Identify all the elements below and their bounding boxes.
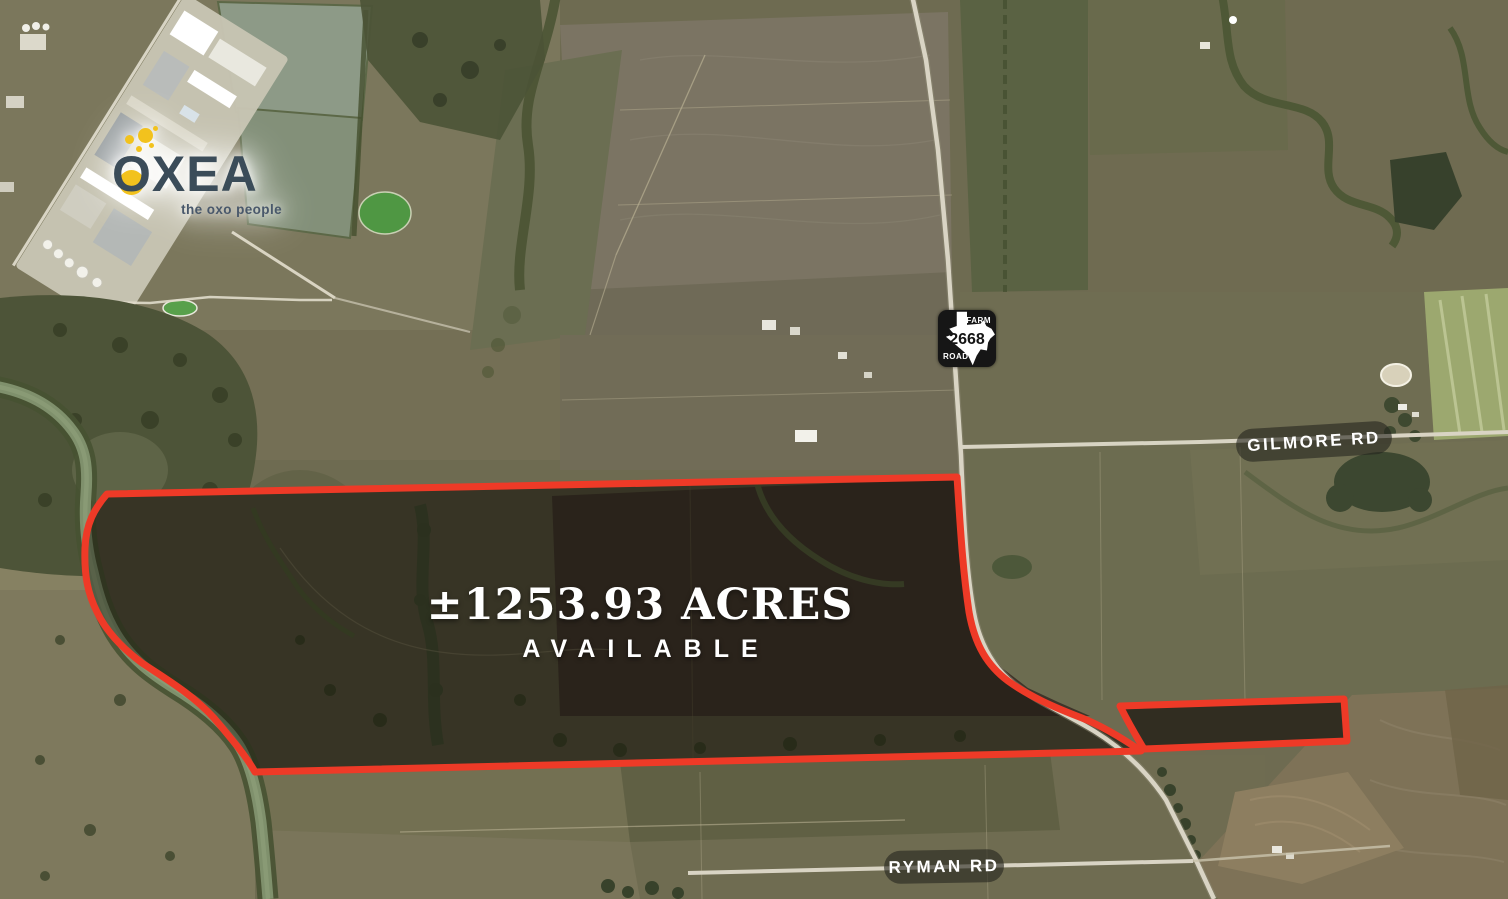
farm-building <box>762 320 776 330</box>
logo-wordmark: OXEA <box>112 149 258 199</box>
logo-bubble-icon <box>153 126 158 131</box>
farm-building <box>795 430 817 442</box>
sign-farm-label: FARM <box>966 316 991 325</box>
logo-tagline: the oxo people <box>144 202 282 217</box>
sign-road-label: ROAD <box>943 352 969 361</box>
green-pond <box>359 192 411 234</box>
roadside-green-field <box>960 0 1088 292</box>
logo-bubble-icon <box>125 135 134 144</box>
oxea-logo: OXEA the oxo people <box>112 122 282 222</box>
acreage-text: ±1253.93 ACRES <box>400 580 880 630</box>
sign-number: 2668 <box>938 331 996 349</box>
logo-bubble-icon <box>138 128 153 143</box>
gilmore-road-label-text: GILMORE RD <box>1247 427 1382 455</box>
stock-pond <box>1381 364 1411 386</box>
availability-text: AVAILABLE <box>400 635 880 664</box>
parcel-annotation: ±1253.93 ACRES AVAILABLE <box>400 580 880 664</box>
ryman-road-label: RYMAN RD <box>884 849 1005 884</box>
map-canvas: OXEA the oxo people FARM 2668 ROAD GILMO… <box>0 0 1508 899</box>
ryman-road-label-text: RYMAN RD <box>888 856 999 878</box>
farm-road-2668-sign: FARM 2668 ROAD <box>938 310 996 367</box>
